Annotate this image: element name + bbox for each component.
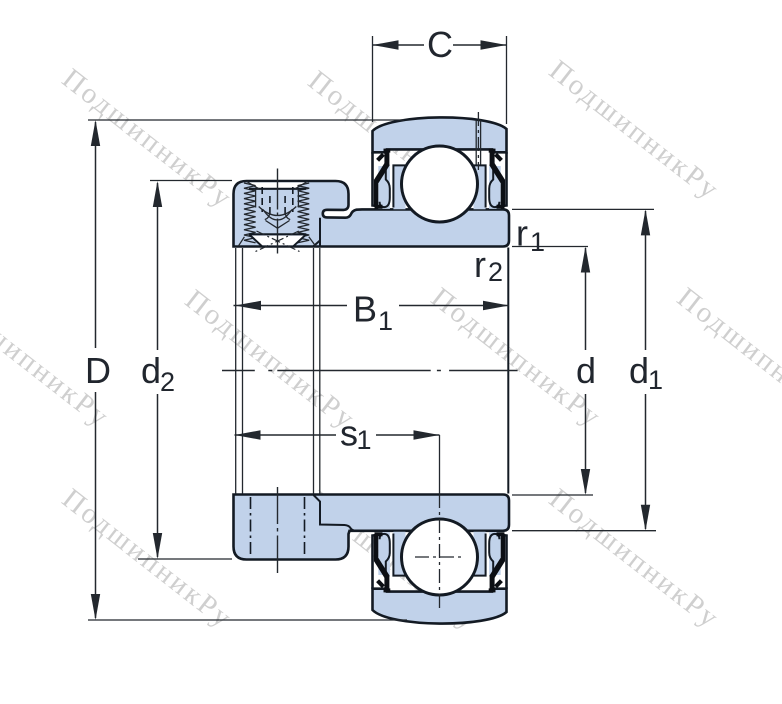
svg-text:d: d [576,350,596,391]
svg-text:d: d [629,350,649,391]
svg-text:d: d [141,350,161,391]
svg-text:r: r [474,244,486,285]
svg-text:2: 2 [160,367,175,397]
svg-text:1: 1 [530,227,545,257]
svg-text:B: B [353,289,377,330]
svg-text:1: 1 [357,425,372,455]
svg-text:C: C [427,24,453,65]
svg-text:2: 2 [488,257,503,287]
svg-text:D: D [85,350,111,391]
svg-text:s: s [340,413,358,454]
svg-text:r: r [516,213,528,254]
svg-text:1: 1 [648,365,663,395]
svg-text:1: 1 [378,306,393,336]
